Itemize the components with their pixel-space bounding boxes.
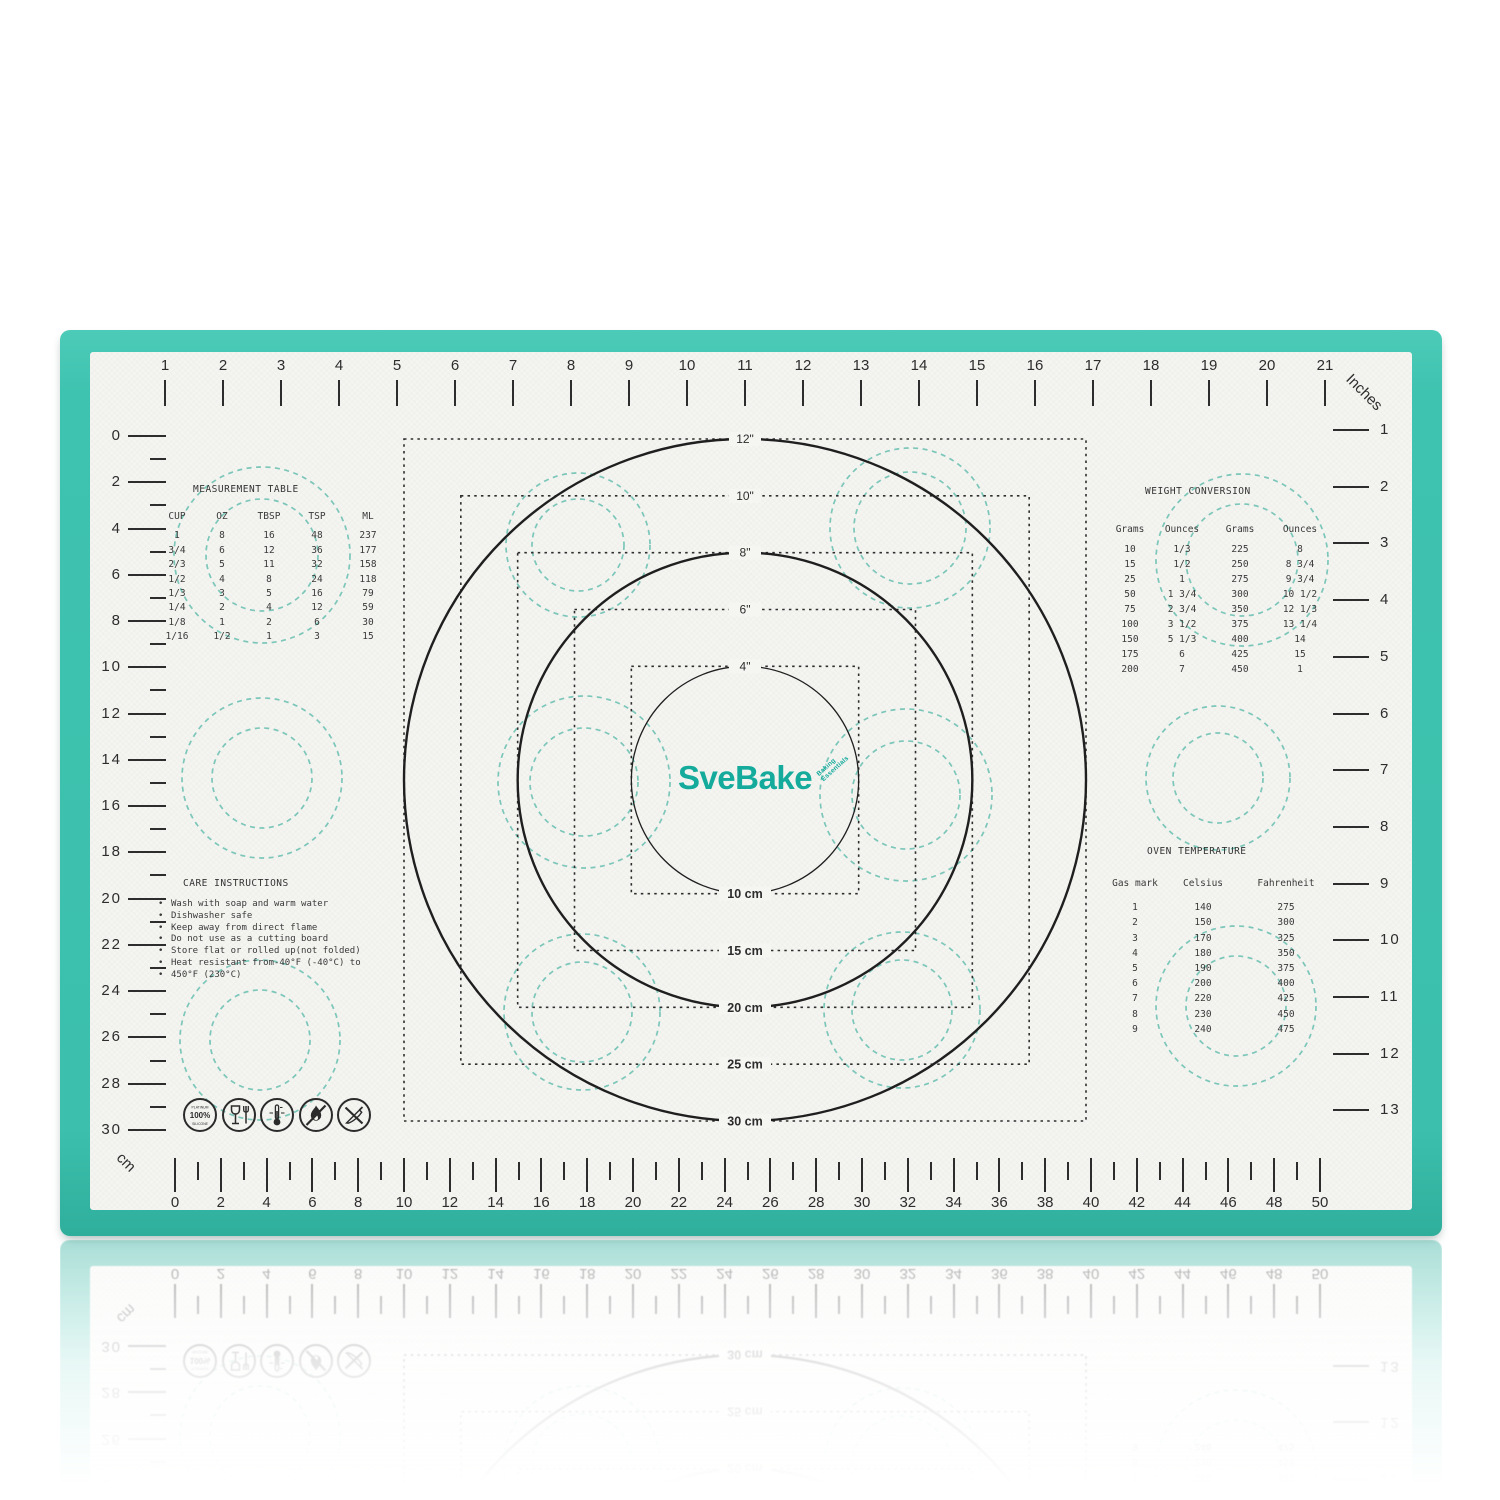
ruler-tick-reflection bbox=[724, 1284, 726, 1318]
table-cell-reflection: 7 bbox=[1106, 1469, 1164, 1484]
care-item: •Store flat or rolled up(not folded) bbox=[158, 946, 428, 958]
table-cell: 300 bbox=[1212, 587, 1268, 602]
table-cell: 220 bbox=[1164, 991, 1242, 1006]
table-cell: 13 1/4 bbox=[1268, 617, 1332, 632]
care-item: •Do not use as a cutting board bbox=[158, 934, 428, 946]
ruler-tick-reflection bbox=[609, 1296, 611, 1314]
ruler-number-reflection: 2 bbox=[207, 1265, 235, 1281]
table-cell: 50 bbox=[1108, 587, 1152, 602]
teal-guide-circle-reflection bbox=[180, 1356, 340, 1500]
certification-icons: PLATINUM 100% SILICONE bbox=[182, 1097, 372, 1133]
ruler-tick-reflection bbox=[1205, 1296, 1207, 1314]
table-header: CUP bbox=[154, 510, 200, 529]
care-text: Heat resistant from-40°F (-40°C) to bbox=[171, 958, 361, 970]
table-cell: 32 bbox=[294, 558, 340, 572]
teal-guide-circle bbox=[1173, 733, 1263, 823]
ruler-tick-reflection bbox=[1273, 1284, 1275, 1318]
ruler-tick-reflection bbox=[1067, 1296, 1069, 1314]
table-cell: 5 bbox=[200, 558, 244, 572]
ruler-number-reflection: 20 bbox=[619, 1265, 647, 1281]
table-cell: 4 bbox=[244, 601, 294, 615]
ruler-tick-reflection bbox=[655, 1296, 657, 1314]
teal-guide-circle bbox=[532, 499, 624, 591]
ruler-number-reflection: 48 bbox=[1260, 1265, 1288, 1281]
platinum-silicone-icon-reflection: PLATINUM 100% SILICONE bbox=[182, 1343, 218, 1379]
care-bullet: • bbox=[158, 934, 171, 946]
table-cell: 350 bbox=[1242, 946, 1330, 961]
no-open-flame-icon-reflection bbox=[298, 1343, 334, 1379]
ruler-number-reflection: 28 bbox=[90, 1384, 122, 1400]
table-cell: 15 bbox=[1108, 557, 1152, 572]
table-cell: 1/16 bbox=[154, 630, 200, 644]
table-cell: 3 bbox=[294, 630, 340, 644]
mat-surface: 12"30 cm10"25 cm8"20 cm6"15 cm4"10 cm 12… bbox=[90, 352, 1412, 1210]
svg-text:SILICONE: SILICONE bbox=[192, 1350, 209, 1354]
weight-conversion-table: GramsOuncesGramsOunces101/32258151/22508… bbox=[1108, 522, 1332, 677]
brand-wordmark: SveBake bbox=[678, 759, 812, 796]
table-cell: 180 bbox=[1164, 946, 1242, 961]
ruler-number-reflection: 14 bbox=[482, 1265, 510, 1281]
ruler-tick-reflection bbox=[1250, 1296, 1252, 1314]
ruler-tick-reflection bbox=[953, 1284, 955, 1318]
right-ruler-inches-reflection: 12345678910111213 bbox=[90, 1266, 1412, 1500]
table-cell: 1/4 bbox=[154, 601, 200, 615]
food-safe-icon bbox=[221, 1097, 257, 1133]
table-header: Grams bbox=[1108, 522, 1152, 542]
table-header: Gas mark bbox=[1106, 876, 1164, 900]
table-header: Ounces bbox=[1268, 522, 1332, 542]
table-header: TSP bbox=[294, 510, 340, 529]
table-cell: 400 bbox=[1242, 976, 1330, 991]
care-item: •Dishwasher safe bbox=[158, 911, 428, 923]
cm-size-label: 20 cm bbox=[727, 1001, 762, 1015]
care-item: •Keep away from direct flame bbox=[158, 923, 428, 935]
ruler-number-reflection: 24 bbox=[711, 1265, 739, 1281]
teal-guide-circle-reflection bbox=[532, 1414, 632, 1500]
table-cell: 5 bbox=[1106, 961, 1164, 976]
table-cell: 8 bbox=[1268, 542, 1332, 557]
table-cell: 1/3 bbox=[154, 587, 200, 601]
ruler-tick-reflection bbox=[907, 1284, 909, 1318]
cm-size-label-reflection: 30 cm bbox=[727, 1348, 762, 1362]
table-header: Celsius bbox=[1164, 876, 1242, 900]
table-cell: 1/3 bbox=[1152, 542, 1212, 557]
table-cell: 1 bbox=[1106, 900, 1164, 915]
no-open-flame-icon bbox=[298, 1097, 334, 1133]
ruler-number-reflection: 10 bbox=[390, 1265, 418, 1281]
care-text: Wash with soap and warm water bbox=[171, 899, 328, 911]
ruler-tick-reflection bbox=[747, 1296, 749, 1314]
dashed-square-guide-reflection bbox=[404, 1355, 1086, 1500]
table-cell: 10 bbox=[1108, 542, 1152, 557]
table-cell-reflection: 450 bbox=[1242, 1454, 1330, 1469]
table-cell: 9 bbox=[1106, 1022, 1164, 1037]
label-backing-reflection bbox=[719, 1462, 771, 1476]
ruler-number-reflection: 18 bbox=[573, 1265, 601, 1281]
table-cell: 15 bbox=[1268, 647, 1332, 662]
teal-guide-circle bbox=[506, 473, 650, 617]
table-cell: 118 bbox=[340, 573, 396, 587]
table-cell: 2 bbox=[1106, 915, 1164, 930]
table-cell: 200 bbox=[1108, 662, 1152, 677]
ruler-tick-reflection bbox=[1319, 1284, 1321, 1318]
table-cell: 1 bbox=[1268, 662, 1332, 677]
ruler-tick-reflection bbox=[884, 1296, 886, 1314]
cm-size-label: 10 cm bbox=[727, 887, 762, 901]
care-bullet: • bbox=[158, 970, 171, 982]
table-cell-reflection: 8 bbox=[1106, 1454, 1164, 1469]
table-cell: 8 bbox=[1106, 1007, 1164, 1022]
ruler-number-reflection: 30 bbox=[90, 1338, 122, 1354]
ruler-number-reflection: 36 bbox=[985, 1265, 1013, 1281]
table-cell: 230 bbox=[1164, 1007, 1242, 1022]
ruler-tick-reflection bbox=[838, 1296, 840, 1314]
ruler-tick-reflection bbox=[976, 1296, 978, 1314]
table-cell: 1/2 bbox=[200, 630, 244, 644]
table-cell: 9 3/4 bbox=[1268, 572, 1332, 587]
ruler-number-reflection: 32 bbox=[894, 1265, 922, 1281]
svg-text:PLATINUM: PLATINUM bbox=[192, 1367, 209, 1371]
mat-reflection: 12"30 cm10"25 cm8"20 cm6"15 cm4"10 cm 12… bbox=[60, 1240, 1442, 1500]
baking-mat: 12"30 cm10"25 cm8"20 cm6"15 cm4"10 cm 12… bbox=[60, 330, 1442, 1236]
circle-guide-reflection bbox=[404, 1355, 1086, 1500]
table-header: Ounces bbox=[1152, 522, 1212, 542]
care-text: 450°F (230°C) bbox=[171, 970, 241, 982]
bottom-ruler-cm-reflection: 0246810121416182022242628303234363840424… bbox=[90, 1266, 1412, 1500]
care-bullet: • bbox=[158, 899, 171, 911]
left-ruler-cm-reflection: 024681012141618202224262830 bbox=[90, 1266, 1412, 1500]
ruler-tick-reflection bbox=[266, 1284, 268, 1318]
care-item: •450°F (230°C) bbox=[158, 970, 428, 982]
ruler-tick-reflection bbox=[563, 1296, 565, 1314]
baking-mat-reflection: 12"30 cm10"25 cm8"20 cm6"15 cm4"10 cm 12… bbox=[60, 1240, 1442, 1500]
teal-guide-circle bbox=[180, 960, 340, 1120]
table-cell: 100 bbox=[1108, 617, 1152, 632]
table-cell: 450 bbox=[1242, 1007, 1330, 1022]
ruler-number-reflection: 6 bbox=[298, 1265, 326, 1281]
teal-guide-circle bbox=[854, 472, 966, 584]
table-cell: 3 bbox=[200, 587, 244, 601]
table-cell: 16 bbox=[244, 529, 294, 543]
table-cell: 12 1/3 bbox=[1268, 602, 1332, 617]
svg-text:100%: 100% bbox=[190, 1111, 210, 1120]
table-header: ML bbox=[340, 510, 396, 529]
teal-guide-circle bbox=[182, 698, 342, 858]
certification-icons-reflection: PLATINUM 100% SILICONE bbox=[182, 1343, 372, 1379]
teal-guide-circle-reflection bbox=[852, 1416, 952, 1500]
food-safe-icon-reflection bbox=[221, 1343, 257, 1379]
care-item: •Wash with soap and warm water bbox=[158, 899, 428, 911]
ruler-tick-reflection bbox=[1333, 1478, 1369, 1480]
ruler-number-reflection: 38 bbox=[1031, 1265, 1059, 1281]
ruler-tick-reflection bbox=[586, 1284, 588, 1318]
table-cell: 3 bbox=[1106, 931, 1164, 946]
care-bullet: • bbox=[158, 958, 171, 970]
svg-text:100%: 100% bbox=[190, 1356, 210, 1365]
ruler-number-reflection: 11 bbox=[1380, 1471, 1414, 1487]
ruler-number-reflection: 46 bbox=[1214, 1265, 1242, 1281]
ruler-tick-reflection bbox=[1113, 1296, 1115, 1314]
ruler-number-reflection: 40 bbox=[1077, 1265, 1105, 1281]
table-cell: 30 bbox=[340, 616, 396, 630]
table-cell: 275 bbox=[1212, 572, 1268, 587]
table-cell: 6 bbox=[1152, 647, 1212, 662]
care-bullet: • bbox=[158, 911, 171, 923]
care-bullet: • bbox=[158, 923, 171, 935]
ruler-number-reflection: 8 bbox=[344, 1265, 372, 1281]
ruler-tick-reflection bbox=[449, 1284, 451, 1318]
inch-size-label: 12" bbox=[736, 432, 754, 446]
label-backing-reflection bbox=[719, 1405, 771, 1419]
table-cell-reflection: 240 bbox=[1164, 1439, 1242, 1454]
ruler-tick-reflection bbox=[540, 1284, 542, 1318]
ruler-tick-reflection bbox=[792, 1296, 794, 1314]
ruler-tick-reflection bbox=[1333, 1421, 1369, 1423]
ruler-number-reflection: 22 bbox=[665, 1265, 693, 1281]
ruler-number-reflection: 4 bbox=[253, 1265, 281, 1281]
table-cell: 400 bbox=[1212, 632, 1268, 647]
top-ruler-inches-reflection: 123456789101112131415161718192021 bbox=[90, 1266, 1412, 1500]
care-text-reflection: 450°F (230°C) bbox=[171, 1494, 241, 1500]
ruler-tick-reflection bbox=[128, 1391, 166, 1393]
inch-size-label: 4" bbox=[740, 659, 751, 673]
ruler-number-reflection: 24 bbox=[90, 1477, 122, 1493]
table-cell: 12 bbox=[244, 544, 294, 558]
table-cell: 170 bbox=[1164, 931, 1242, 946]
ruler-tick-reflection bbox=[1090, 1284, 1092, 1318]
cm-size-label-reflection: 25 cm bbox=[727, 1404, 762, 1418]
teal-guide-circle bbox=[210, 990, 310, 1090]
table-cell: 150 bbox=[1108, 632, 1152, 647]
inch-size-label: 6" bbox=[740, 603, 751, 617]
cm-size-label: 15 cm bbox=[727, 944, 762, 958]
table-cell-reflection: 220 bbox=[1164, 1469, 1242, 1484]
ruler-tick-reflection bbox=[1333, 1365, 1369, 1367]
table-cell: 59 bbox=[340, 601, 396, 615]
table-header: Grams bbox=[1212, 522, 1268, 542]
ruler-tick-reflection bbox=[1044, 1284, 1046, 1318]
care-item-reflection: •450°F (230°C) bbox=[158, 1494, 428, 1500]
table-cell-reflection: 475 bbox=[1242, 1439, 1330, 1454]
temperature-range-icon bbox=[259, 1097, 295, 1133]
table-cell: 1 bbox=[154, 529, 200, 543]
table-header: OZ bbox=[200, 510, 244, 529]
table-cell: 7 bbox=[1152, 662, 1212, 677]
table-cell: 36 bbox=[294, 544, 340, 558]
table-cell: 140 bbox=[1164, 900, 1242, 915]
cm-size-label: 30 cm bbox=[727, 1115, 762, 1129]
table-cell: 2 3/4 bbox=[1152, 602, 1212, 617]
care-bullet: • bbox=[158, 946, 171, 958]
table-cell: 225 bbox=[1212, 542, 1268, 557]
teal-guide-circle bbox=[532, 962, 632, 1062]
ruler-tick-reflection bbox=[150, 1461, 166, 1463]
table-cell: 175 bbox=[1108, 647, 1152, 662]
svg-text:SILICONE: SILICONE bbox=[192, 1122, 209, 1126]
teal-guide-circle bbox=[530, 728, 638, 836]
ruler-number-reflection: 26 bbox=[90, 1431, 122, 1447]
inch-size-label: 8" bbox=[740, 546, 751, 560]
care-bullet-reflection: • bbox=[158, 1494, 171, 1500]
ruler-tick-reflection bbox=[128, 1484, 166, 1486]
table-cell: 177 bbox=[340, 544, 396, 558]
teal-guide-circle-reflection bbox=[824, 1388, 980, 1500]
ruler-tick-reflection bbox=[311, 1284, 313, 1318]
table-cell: 11 bbox=[244, 558, 294, 572]
no-cutting-icon bbox=[336, 1097, 372, 1133]
ruler-number-reflection: 34 bbox=[940, 1265, 968, 1281]
ruler-number-reflection: 12 bbox=[436, 1265, 464, 1281]
ruler-tick-reflection bbox=[150, 1415, 166, 1417]
ruler-number-reflection: 0 bbox=[161, 1265, 189, 1281]
oven-temperature-table-reflection: Gas markCelsiusFahrenheit114027521503003… bbox=[1106, 1439, 1330, 1500]
care-text: Store flat or rolled up(not folded) bbox=[171, 946, 361, 958]
ruler-number-reflection: 26 bbox=[756, 1265, 784, 1281]
teal-guide-circle bbox=[1146, 706, 1290, 850]
oven-temperature-table: Gas markCelsiusFahrenheit114027521503003… bbox=[1106, 876, 1330, 1037]
circle-guide-reflection bbox=[518, 1469, 973, 1500]
measurement-table: CUPOZTBSPTSPML1816482373/4612361772/3511… bbox=[154, 510, 396, 645]
ruler-tick-reflection bbox=[357, 1284, 359, 1318]
ruler-tick-reflection bbox=[769, 1284, 771, 1318]
table-cell: 10 1/2 bbox=[1268, 587, 1332, 602]
ruler-tick-reflection bbox=[701, 1296, 703, 1314]
table-cell: 12 bbox=[294, 601, 340, 615]
teal-guide-circle-reflection bbox=[210, 1386, 310, 1486]
ruler-number-reflection: 28 bbox=[802, 1265, 830, 1281]
ruler-tick-reflection bbox=[495, 1284, 497, 1318]
care-instructions-list: •Wash with soap and warm water•Dishwashe… bbox=[158, 899, 428, 982]
ruler-tick-reflection bbox=[150, 1368, 166, 1370]
table-cell-reflection: 9 bbox=[1106, 1439, 1164, 1454]
ruler-tick-reflection bbox=[243, 1296, 245, 1314]
ruler-tick-reflection bbox=[930, 1296, 932, 1314]
teal-guide-circle bbox=[504, 934, 660, 1090]
table-cell: 14 bbox=[1268, 632, 1332, 647]
ruler-number-reflection: 50 bbox=[1306, 1265, 1334, 1281]
table-cell: 3 1/2 bbox=[1152, 617, 1212, 632]
table-cell: 5 bbox=[244, 587, 294, 601]
label-backing-reflection bbox=[719, 1348, 771, 1362]
table-cell: 8 3/4 bbox=[1268, 557, 1332, 572]
ruler-tick-reflection bbox=[426, 1296, 428, 1314]
table-cell: 475 bbox=[1242, 1022, 1330, 1037]
table-cell-reflection: 200 bbox=[1164, 1485, 1242, 1500]
table-cell: 2 bbox=[244, 616, 294, 630]
dashed-square-guide-reflection bbox=[518, 1469, 973, 1500]
ruler-number-reflection: 42 bbox=[1123, 1265, 1151, 1281]
care-text: Keep away from direct flame bbox=[171, 923, 317, 935]
ruler-tick-reflection bbox=[220, 1284, 222, 1318]
ruler-tick-reflection bbox=[678, 1284, 680, 1318]
ruler-tick-reflection bbox=[380, 1296, 382, 1314]
table-cell: 200 bbox=[1164, 976, 1242, 991]
cm-size-label: 25 cm bbox=[727, 1058, 762, 1072]
table-cell: 8 bbox=[244, 573, 294, 587]
platinum-silicone-icon: PLATINUM 100% SILICONE bbox=[182, 1097, 218, 1133]
table-cell: 3/4 bbox=[154, 544, 200, 558]
teal-guide-circle-reflection bbox=[1186, 1420, 1286, 1500]
table-cell: 2 bbox=[200, 601, 244, 615]
table-cell: 8 bbox=[200, 529, 244, 543]
table-cell: 16 bbox=[294, 587, 340, 601]
table-cell: 75 bbox=[1108, 602, 1152, 617]
table-cell: 2/3 bbox=[154, 558, 200, 572]
ruler-tick-reflection bbox=[334, 1296, 336, 1314]
table-header: TBSP bbox=[244, 510, 294, 529]
ruler-tick-reflection bbox=[128, 1438, 166, 1440]
table-cell: 1 bbox=[200, 616, 244, 630]
table-cell: 1/2 bbox=[154, 573, 200, 587]
teal-guide-circle-reflection bbox=[1156, 1390, 1316, 1500]
table-header: Fahrenheit bbox=[1242, 876, 1330, 900]
ruler-tick-reflection bbox=[197, 1296, 199, 1314]
table-cell: 240 bbox=[1164, 1022, 1242, 1037]
table-cell: 1 bbox=[244, 630, 294, 644]
product-photo-scene: 12"30 cm10"25 cm8"20 cm6"15 cm4"10 cm 12… bbox=[0, 0, 1500, 1500]
brand-logo: SveBake Baking Essentials bbox=[635, 758, 855, 798]
temperature-range-icon-reflection bbox=[259, 1343, 295, 1379]
ruler-tick-reflection bbox=[998, 1284, 1000, 1318]
table-cell: 1 bbox=[1152, 572, 1212, 587]
table-cell: 4 bbox=[1106, 946, 1164, 961]
table-cell: 237 bbox=[340, 529, 396, 543]
ruler-tick-reflection bbox=[1021, 1296, 1023, 1314]
ruler-number-reflection: 30 bbox=[848, 1265, 876, 1281]
table-cell: 25 bbox=[1108, 572, 1152, 587]
inch-size-label: 10" bbox=[736, 489, 754, 503]
table-cell: 7 bbox=[1106, 991, 1164, 1006]
ruler-number-reflection: 12 bbox=[1380, 1414, 1414, 1430]
teal-guide-circle bbox=[852, 960, 952, 1060]
cm-unit-label-reflection: cm bbox=[113, 1300, 139, 1326]
ruler-tick-reflection bbox=[174, 1284, 176, 1318]
table-cell: 6 bbox=[294, 616, 340, 630]
mat-surface-reflection: 12"30 cm10"25 cm8"20 cm6"15 cm4"10 cm 12… bbox=[90, 1266, 1412, 1500]
ruler-number-reflection: 44 bbox=[1169, 1265, 1197, 1281]
table-cell-reflection: 425 bbox=[1242, 1469, 1330, 1484]
table-cell: 48 bbox=[294, 529, 340, 543]
table-cell: 275 bbox=[1242, 900, 1330, 915]
table-cell: 24 bbox=[294, 573, 340, 587]
table-cell-reflection: 230 bbox=[1164, 1454, 1242, 1469]
cm-size-label-reflection: 20 cm bbox=[727, 1461, 762, 1475]
table-cell: 190 bbox=[1164, 961, 1242, 976]
table-cell: 425 bbox=[1212, 647, 1268, 662]
table-cell: 79 bbox=[340, 587, 396, 601]
teal-guide-circle bbox=[852, 741, 960, 849]
ruler-tick-reflection bbox=[861, 1284, 863, 1318]
ruler-tick-reflection bbox=[815, 1284, 817, 1318]
table-cell: 158 bbox=[340, 558, 396, 572]
table-cell: 425 bbox=[1242, 991, 1330, 1006]
table-cell: 325 bbox=[1242, 931, 1330, 946]
ruler-tick-reflection bbox=[289, 1296, 291, 1314]
table-cell: 1/8 bbox=[154, 616, 200, 630]
table-cell: 375 bbox=[1242, 961, 1330, 976]
ruler-tick-reflection bbox=[632, 1284, 634, 1318]
ruler-tick-reflection bbox=[518, 1296, 520, 1314]
table-cell-reflection: 6 bbox=[1106, 1485, 1164, 1500]
dashed-square-guide-reflection bbox=[461, 1412, 1029, 1500]
table-cell: 15 bbox=[340, 630, 396, 644]
teal-guide-circle bbox=[824, 932, 980, 1088]
teal-guide-circle bbox=[212, 728, 312, 828]
table-cell: 300 bbox=[1242, 915, 1330, 930]
ruler-tick-reflection bbox=[1159, 1296, 1161, 1314]
ruler-tick-reflection bbox=[1296, 1296, 1298, 1314]
table-cell: 375 bbox=[1212, 617, 1268, 632]
